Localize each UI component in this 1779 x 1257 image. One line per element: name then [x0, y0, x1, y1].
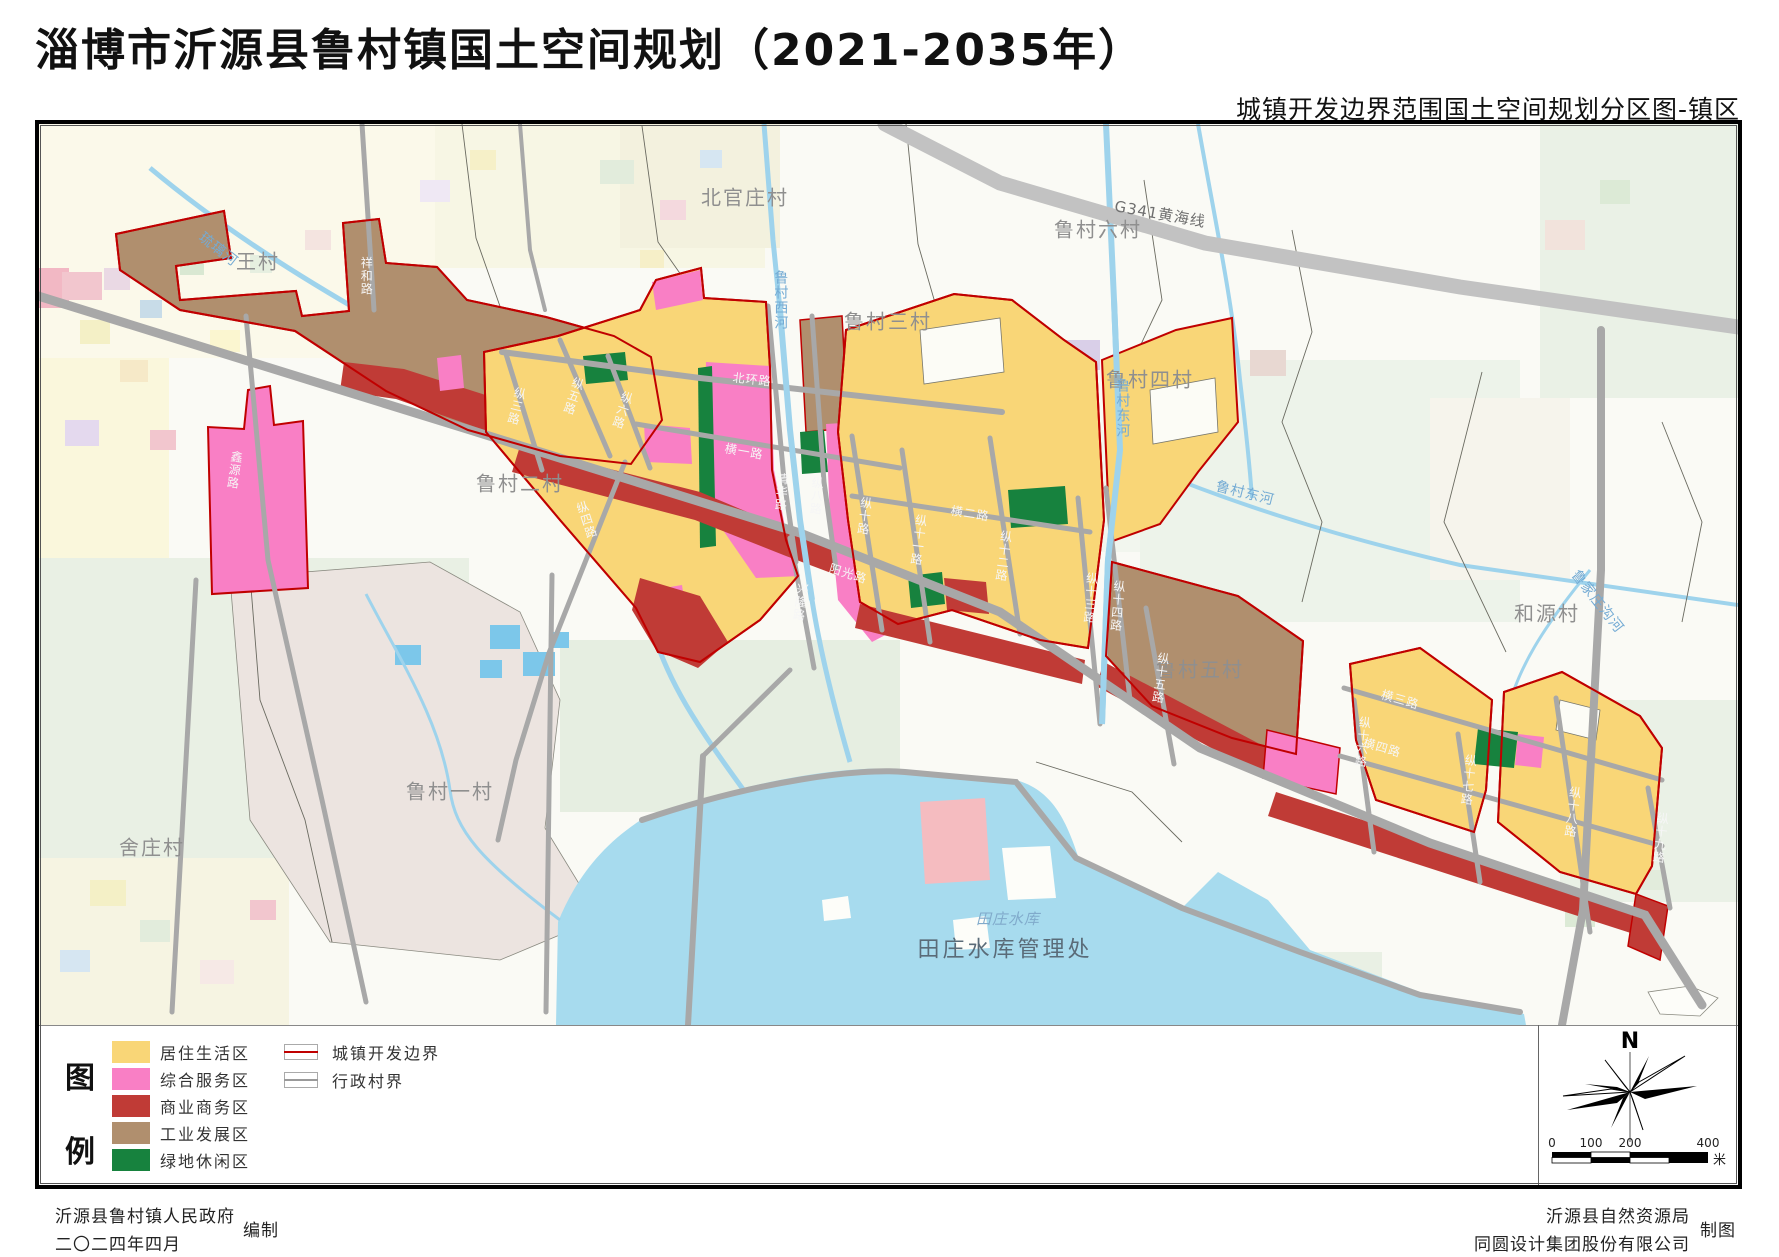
footer-right-role: 制图 — [1700, 1216, 1736, 1241]
footer-left-date: 二〇二四年四月 — [55, 1230, 181, 1255]
footer-right-org2: 同圆设计集团股份有限公司 — [1474, 1230, 1690, 1255]
page-title: 淄博市沂源县鲁村镇国土空间规划（2021-2035年） — [35, 14, 1144, 78]
plan-sheet: 淄博市沂源县鲁村镇国土空间规划（2021-2035年） 城镇开发边界范围国土空间… — [0, 0, 1779, 1257]
footer-right-org1: 沂源县自然资源局 — [1546, 1202, 1690, 1227]
footer-left-role: 编制 — [243, 1216, 279, 1241]
footer-left-org: 沂源县鲁村镇人民政府 — [55, 1202, 235, 1227]
map-frame — [35, 120, 1742, 1189]
